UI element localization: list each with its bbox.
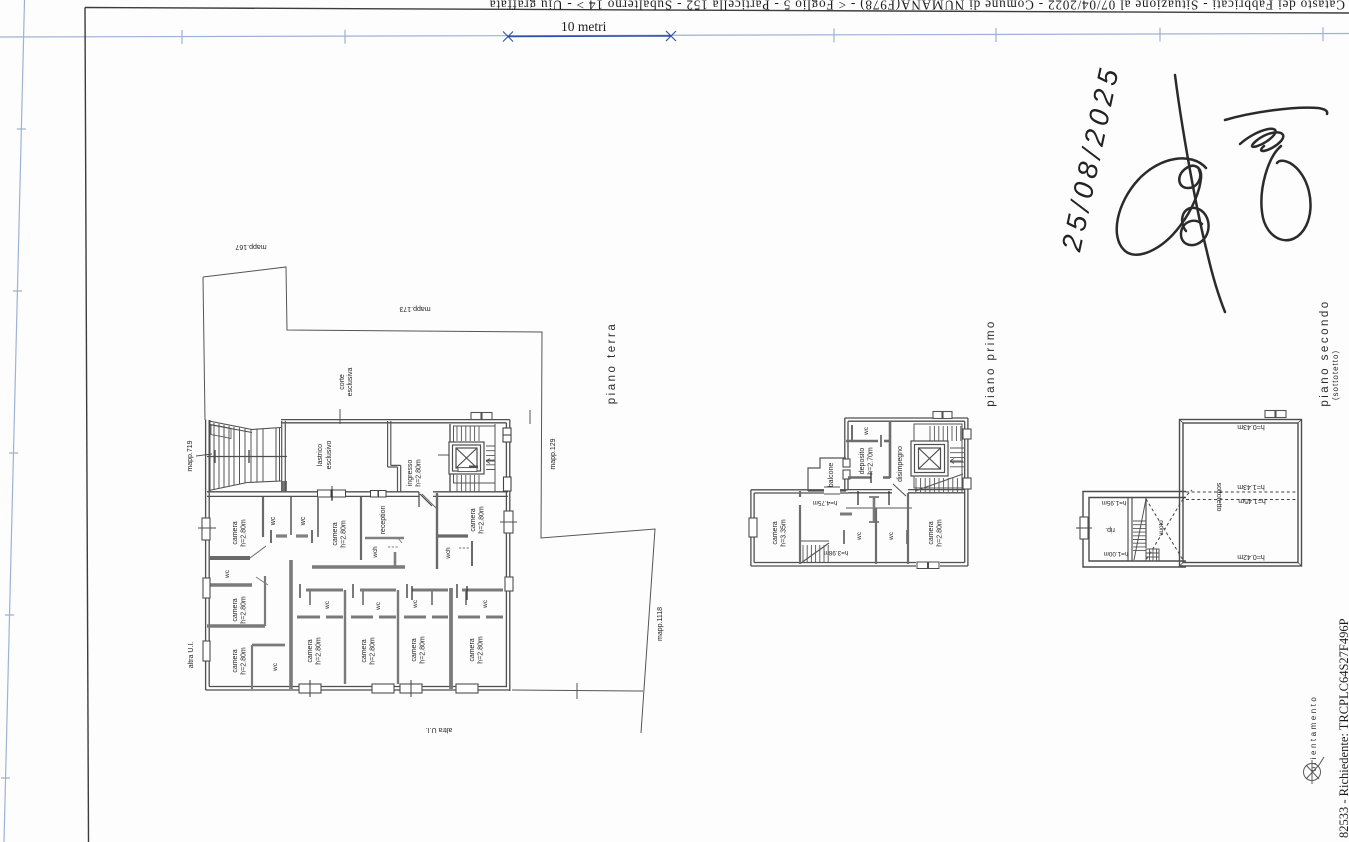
svg-text:camera: camera (361, 639, 368, 662)
svg-text:h=2.80m: h=2.80m (479, 506, 486, 534)
svg-text:mapp.173: mapp.173 (399, 305, 430, 312)
svg-text:h=1.95m: h=1.95m (1102, 499, 1127, 506)
svg-text:camera: camera (232, 598, 239, 621)
svg-text:wc: wc (888, 532, 895, 541)
svg-text:wch: wch (372, 546, 379, 559)
svg-text:h=3.35m: h=3.35m (781, 519, 788, 547)
svg-text:h=0.43m: h=0.43m (1237, 423, 1265, 430)
svg-text:reception: reception (380, 505, 387, 534)
svg-text:corte: corte (339, 374, 346, 390)
svg-text:h=2.80m: h=2.80m (241, 647, 248, 675)
svg-text:mapp.129: mapp.129 (550, 438, 557, 469)
svg-text:mapp.1118: mapp.1118 (657, 607, 664, 641)
svg-text:camera: camera (469, 638, 476, 661)
svg-text:camera: camera (332, 522, 339, 545)
svg-text:wc: wc (412, 600, 419, 609)
svg-text:Catasto dei Fabbricati - Situa: Catasto dei Fabbricati - Situazione al 0… (489, 0, 1345, 13)
svg-text:h=2.80m: h=2.80m (341, 520, 348, 548)
svg-text:altra U.I.: altra U.I. (188, 642, 195, 669)
svg-text:camera: camera (928, 521, 935, 544)
svg-text:h=2.80m: h=2.80m (241, 519, 248, 547)
svg-text:piano secondo: piano secondo (1319, 299, 1331, 406)
svg-text:rip.: rip. (1105, 526, 1115, 533)
svg-text:camera: camera (411, 638, 418, 661)
svg-text:h=2.80m: h=2.80m (416, 459, 423, 487)
svg-text:vuoto: vuoto (1158, 520, 1165, 536)
svg-text:h=2.80m: h=2.80m (478, 636, 485, 664)
svg-text:h=2.80m: h=2.80m (241, 596, 248, 624)
svg-text:esclusivo: esclusivo (326, 441, 333, 470)
svg-text:camera: camera (772, 521, 779, 544)
svg-text:altra U.I.: altra U.I. (426, 726, 453, 733)
svg-text:camera: camera (307, 639, 314, 662)
svg-text:piano primo: piano primo (985, 319, 997, 407)
svg-text:wc: wc (300, 516, 307, 526)
svg-text:10 metri: 10 metri (561, 19, 607, 34)
svg-text:mapp.167: mapp.167 (235, 243, 266, 250)
svg-text:balcone: balcone (828, 463, 835, 488)
svg-text:h=2.80m: h=2.80m (316, 637, 323, 665)
svg-text:h=2.70m: h=2.70m (868, 447, 875, 475)
svg-text:camera: camera (470, 508, 477, 531)
svg-text:wc: wc (375, 602, 382, 611)
svg-text:h=1.43m: h=1.43m (1237, 483, 1265, 490)
svg-text:h=0.42m: h=0.42m (1237, 553, 1265, 560)
svg-text:82533 - Richiedente: TRCPLC64S: 82533 - Richiedente: TRCPLC64S27F496P (1337, 618, 1349, 838)
svg-text:piano terra: piano terra (606, 322, 618, 404)
svg-text:camera: camera (232, 521, 239, 544)
svg-text:wc: wc (272, 663, 279, 672)
svg-text:wc: wc (324, 601, 331, 610)
svg-text:h=4.75m: h=4.75m (813, 499, 838, 506)
svg-text:h=3.98m: h=3.98m (824, 549, 849, 556)
svg-text:orientamento: orientamento (1309, 695, 1318, 772)
svg-text:wch: wch (445, 547, 452, 560)
svg-text:ingresso: ingresso (407, 460, 414, 487)
svg-text:mapp.719: mapp.719 (187, 440, 194, 471)
svg-text:sottotetto: sottotetto (1215, 483, 1222, 512)
svg-text:lastrico: lastrico (317, 444, 324, 466)
svg-text:h=1.45m: h=1.45m (1238, 497, 1266, 504)
svg-text:esclusiva: esclusiva (347, 368, 354, 397)
svg-text:h=2.80m: h=2.80m (420, 636, 427, 664)
svg-text:(sottotetto): (sottotetto) (1331, 350, 1340, 400)
svg-text:wc: wc (224, 570, 231, 579)
svg-text:disimpegno: disimpegno (897, 446, 904, 482)
svg-text:camera: camera (232, 649, 239, 672)
svg-text:h=2.80m: h=2.80m (370, 637, 377, 665)
svg-text:h=1.00m: h=1.00m (1104, 550, 1129, 557)
svg-text:wc: wc (482, 600, 489, 609)
svg-text:h=2.80m: h=2.80m (937, 519, 944, 547)
svg-text:wc: wc (856, 532, 863, 541)
svg-text:deposito: deposito (859, 448, 866, 475)
svg-text:wc: wc (863, 427, 870, 436)
svg-text:wc: wc (270, 516, 277, 526)
